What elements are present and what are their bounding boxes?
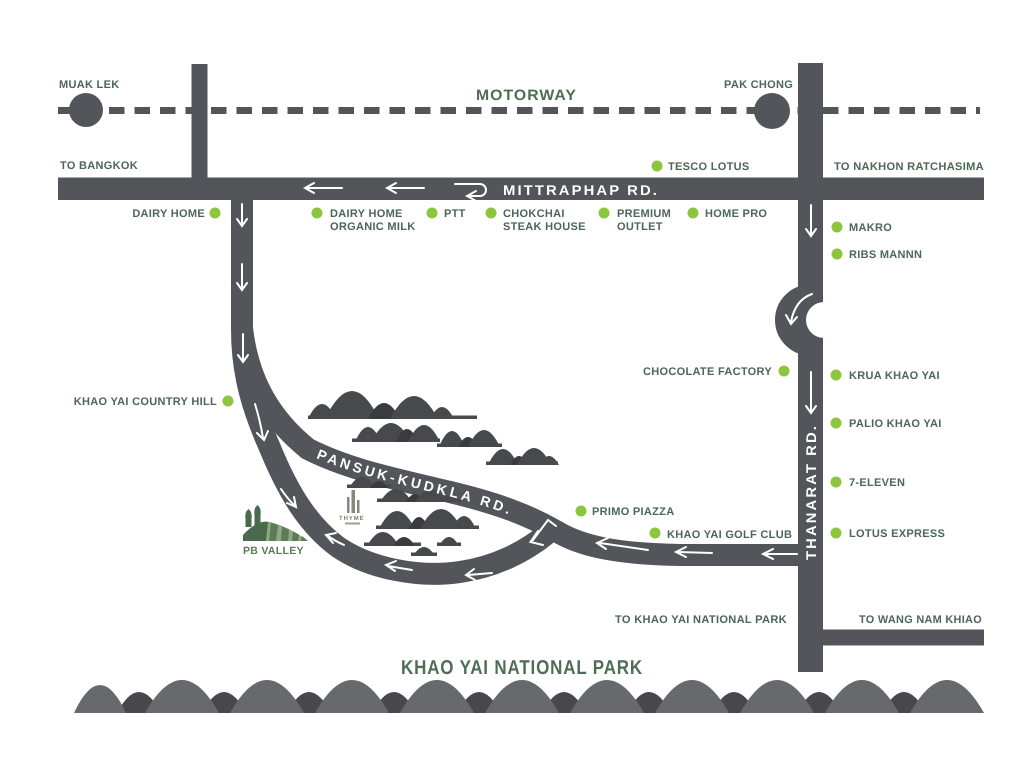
svg-text:TO KHAO YAI NATIONAL PARK: TO KHAO YAI NATIONAL PARK xyxy=(615,614,787,626)
svg-text:PALIO KHAO YAI: PALIO KHAO YAI xyxy=(849,418,942,430)
svg-text:TO NAKHON RATCHASIMA: TO NAKHON RATCHASIMA xyxy=(834,161,984,173)
svg-text:KRUA KHAO YAI: KRUA KHAO YAI xyxy=(849,370,940,382)
svg-text:KHAO YAI COUNTRY HILL: KHAO YAI COUNTRY HILL xyxy=(74,396,217,408)
svg-text:PRIMO PIAZZA: PRIMO PIAZZA xyxy=(592,506,674,518)
svg-text:KHAO YAI GOLF CLUB: KHAO YAI GOLF CLUB xyxy=(667,529,792,541)
svg-text:TO WANG NAM KHIAO: TO WANG NAM KHIAO xyxy=(859,614,982,626)
svg-text:DAIRY HOME: DAIRY HOME xyxy=(330,208,403,220)
svg-text:ORGANIC MILK: ORGANIC MILK xyxy=(330,221,415,233)
svg-text:TO BANGKOK: TO BANGKOK xyxy=(60,160,138,172)
svg-text:THYME: THYME xyxy=(339,515,365,522)
svg-text:PAK CHONG: PAK CHONG xyxy=(724,79,793,91)
svg-text:MAKRO: MAKRO xyxy=(849,222,892,234)
svg-text:DAIRY HOME: DAIRY HOME xyxy=(132,208,205,220)
svg-text:PTT: PTT xyxy=(444,208,466,220)
svg-text:THANARAT RD.: THANARAT RD. xyxy=(803,424,819,560)
svg-text:CHOKCHAI: CHOKCHAI xyxy=(503,208,565,220)
svg-text:PB VALLEY: PB VALLEY xyxy=(243,545,304,557)
svg-text:LOTUS EXPRESS: LOTUS EXPRESS xyxy=(849,528,945,540)
svg-text:HOME PRO: HOME PRO xyxy=(705,208,767,220)
svg-text:CHOCOLATE FACTORY: CHOCOLATE FACTORY xyxy=(643,366,772,378)
svg-text:MITTRAPHAP RD.: MITTRAPHAP RD. xyxy=(503,182,659,198)
svg-text:TESCO LOTUS: TESCO LOTUS xyxy=(668,161,750,173)
svg-text:7-ELEVEN: 7-ELEVEN xyxy=(849,477,905,489)
svg-text:KHAO YAI NATIONAL PARK: KHAO YAI NATIONAL PARK xyxy=(401,657,643,679)
svg-text:STEAK HOUSE: STEAK HOUSE xyxy=(503,221,586,233)
svg-text:PREMIUM: PREMIUM xyxy=(617,208,671,220)
svg-text:RIBS MANNN: RIBS MANNN xyxy=(849,249,922,261)
svg-text:MUAK LEK: MUAK LEK xyxy=(59,79,119,91)
svg-text:MOTORWAY: MOTORWAY xyxy=(476,87,577,104)
svg-text:OUTLET: OUTLET xyxy=(617,221,663,233)
